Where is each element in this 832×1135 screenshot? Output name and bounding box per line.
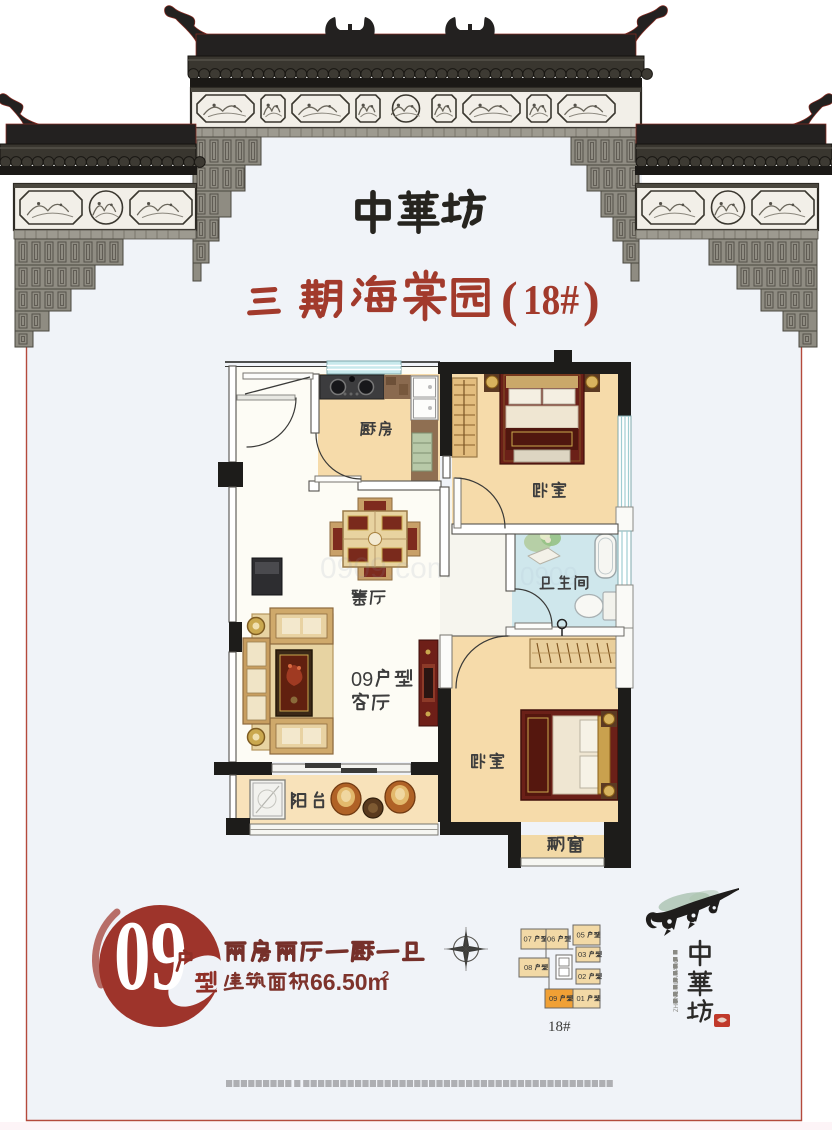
svg-text:03: 03 — [578, 950, 586, 959]
svg-text:07: 07 — [524, 935, 532, 944]
svg-text:06: 06 — [547, 935, 555, 944]
svg-text:09: 09 — [351, 669, 373, 691]
svg-text:2: 2 — [382, 968, 389, 983]
svg-text:09: 09 — [114, 900, 187, 1011]
svg-text:0909.com: 0909.com — [320, 552, 452, 585]
svg-text:): ) — [583, 271, 600, 327]
svg-text:66.50m: 66.50m — [310, 969, 388, 995]
svg-text:18#: 18# — [523, 278, 579, 324]
svg-text:01: 01 — [577, 994, 585, 1003]
svg-text:08: 08 — [524, 963, 532, 972]
svg-text:09: 09 — [549, 994, 557, 1003]
svg-text:ZHONG HUA FANG: ZHONG HUA FANG — [674, 958, 680, 1012]
svg-text:05: 05 — [577, 931, 585, 940]
svg-text:18#: 18# — [548, 1019, 571, 1035]
svg-text:02: 02 — [578, 972, 586, 981]
svg-text:(: ( — [501, 271, 518, 327]
svg-text:0909: 0909 — [520, 561, 578, 591]
